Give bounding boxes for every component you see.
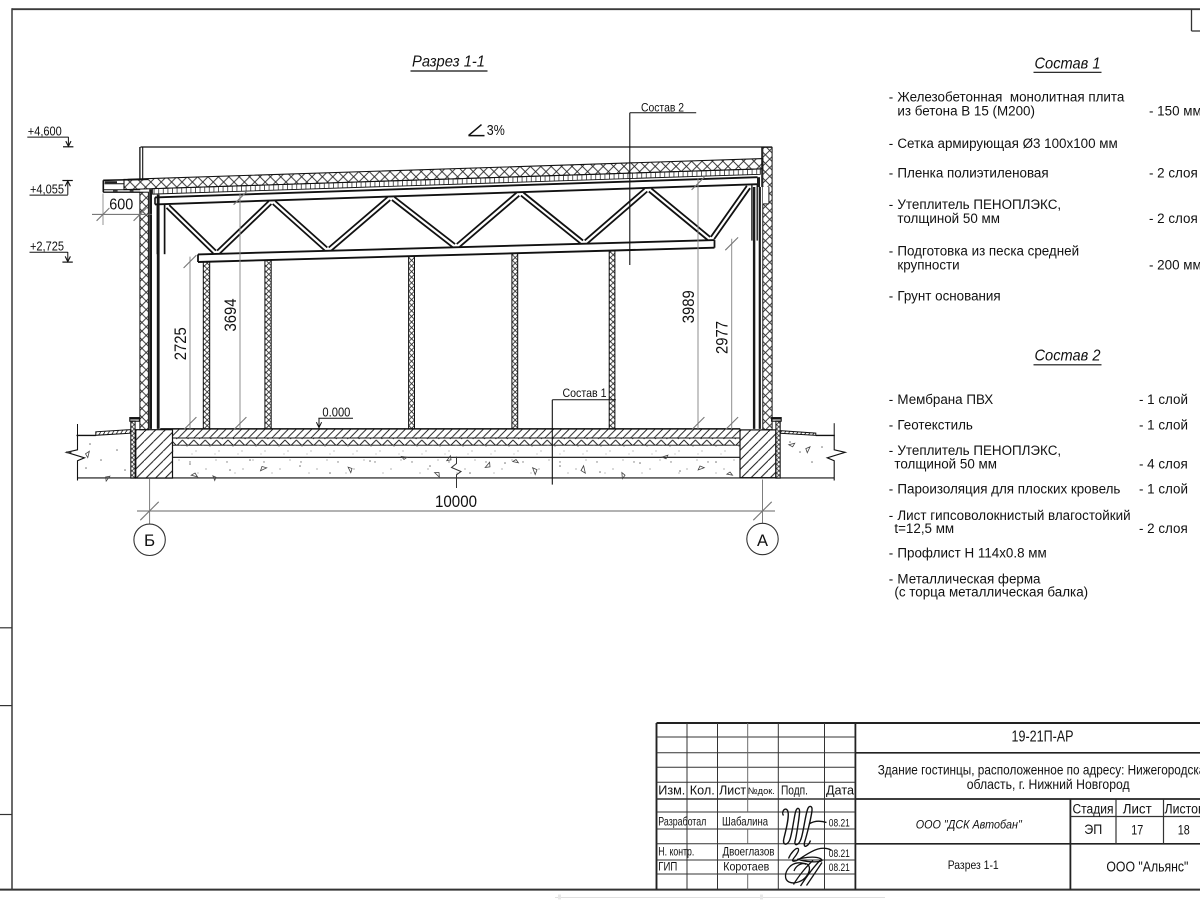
svg-text:Подп.: Подп. <box>781 783 808 798</box>
svg-text:- 1 слой: - 1 слой <box>1139 392 1188 407</box>
svg-text:Грунт основания: Грунт основания <box>897 289 1000 304</box>
svg-text:Б: Б <box>144 531 155 550</box>
svg-text:ООО "Альянс": ООО "Альянс" <box>1106 859 1188 876</box>
svg-text:08.21: 08.21 <box>829 848 850 860</box>
svg-text:Пароизоляция для плоских крове: Пароизоляция для плоских кровель <box>897 482 1120 497</box>
svg-text:ООО "ДСК Автобан": ООО "ДСК Автобан" <box>916 817 1023 831</box>
svg-text:Состав 1: Состав 1 <box>1035 55 1101 72</box>
svg-text:(с торца металлическая балка): (с торца металлическая балка) <box>894 585 1088 600</box>
svg-text:Кол.: Кол. <box>690 783 715 798</box>
svg-text:+4,600: +4,600 <box>28 123 62 138</box>
svg-text:600: 600 <box>109 196 133 213</box>
svg-text:Изм.: Изм. <box>658 783 685 798</box>
svg-text:- 150 мм: - 150 мм <box>1149 104 1200 119</box>
svg-text:-: - <box>889 392 893 407</box>
svg-text:+2,725: +2,725 <box>30 238 64 253</box>
svg-text:-: - <box>889 417 893 432</box>
svg-text:Состав 1: Состав 1 <box>563 386 607 400</box>
svg-text:- 1 слой: - 1 слой <box>1139 417 1188 432</box>
svg-text:Железобетонная монолитная пли: Железобетонная монолитная плита <box>897 90 1124 105</box>
svg-text:Здание гостинцы, расположенное: Здание гостинцы, расположенное по адресу… <box>878 762 1200 777</box>
svg-text:17: 17 <box>1131 822 1143 838</box>
svg-text:область, г. Нижний Новгород: область, г. Нижний Новгород <box>967 777 1130 792</box>
svg-text:толщиной 50 мм: толщиной 50 мм <box>894 456 997 471</box>
svg-text:Шабалина: Шабалина <box>722 814 768 828</box>
svg-text:Мембрана ПВХ: Мембрана ПВХ <box>897 392 993 407</box>
svg-text:Пленка полиэтиленовая: Пленка полиэтиленовая <box>897 166 1048 181</box>
svg-text:из бетона В 15 (М200): из бетона В 15 (М200) <box>897 104 1035 119</box>
svg-text:+4,055: +4,055 <box>30 181 64 196</box>
svg-text:10000: 10000 <box>435 492 477 511</box>
svg-text:Стадия: Стадия <box>1073 802 1114 817</box>
svg-text:08.21: 08.21 <box>829 817 850 829</box>
svg-text:-: - <box>889 90 893 105</box>
svg-text:3%: 3% <box>487 123 505 139</box>
svg-text:2725: 2725 <box>172 327 190 360</box>
svg-text:Разработал: Разработал <box>658 814 706 828</box>
svg-text:Подготовка из песка средней: Подготовка из песка средней <box>897 243 1079 258</box>
svg-text:3989: 3989 <box>680 290 698 323</box>
svg-text:Лист: Лист <box>719 783 746 798</box>
svg-text:Разрез 1-1: Разрез 1-1 <box>948 858 999 872</box>
svg-text:-: - <box>889 546 893 561</box>
svg-text:ГИП: ГИП <box>658 859 677 873</box>
svg-text:-: - <box>889 136 893 151</box>
svg-text:t=12,5 мм: t=12,5 мм <box>894 521 954 536</box>
svg-text:Разрез 1-1: Разрез 1-1 <box>412 54 485 71</box>
svg-text:Двоеглазов: Двоеглазов <box>723 845 775 859</box>
svg-text:№док.: №док. <box>748 786 775 797</box>
svg-text:- 2 слоя: - 2 слоя <box>1149 211 1198 226</box>
svg-text:толщиной 50 мм: толщиной 50 мм <box>897 211 1000 226</box>
svg-text:Сетка армирующая Ø3 100х100 мм: Сетка армирующая Ø3 100х100 мм <box>897 136 1117 151</box>
svg-text:ЭП: ЭП <box>1084 821 1102 837</box>
svg-text:-: - <box>889 508 893 523</box>
svg-text:- 200 мм: - 200 мм <box>1149 258 1200 273</box>
svg-text:19-21П-АР: 19-21П-АР <box>1012 729 1074 746</box>
svg-text:-: - <box>889 571 893 586</box>
svg-text:-: - <box>889 197 893 212</box>
svg-text:крупности: крупности <box>897 258 959 273</box>
svg-text:-: - <box>889 166 893 181</box>
svg-text:Утеплитель ПЕНОПЛЭКС,: Утеплитель ПЕНОПЛЭКС, <box>897 197 1061 212</box>
svg-text:- 2 слоя: - 2 слоя <box>1149 166 1198 181</box>
svg-text:08.21: 08.21 <box>829 862 850 874</box>
svg-text:Листов: Листов <box>1165 802 1200 817</box>
svg-text:Н. контр.: Н. контр. <box>658 845 694 859</box>
svg-text:3694: 3694 <box>222 299 240 332</box>
svg-text:Профлист Н 114х0.8 мм: Профлист Н 114х0.8 мм <box>897 546 1046 561</box>
svg-text:-: - <box>889 482 893 497</box>
svg-text:-: - <box>889 243 893 258</box>
svg-text:Дата: Дата <box>826 783 855 798</box>
svg-text:- 4 слоя: - 4 слоя <box>1139 456 1188 471</box>
svg-text:Коротаев: Коротаев <box>723 859 769 873</box>
svg-text:А: А <box>757 532 768 550</box>
svg-text:- 2 слоя: - 2 слоя <box>1139 521 1188 536</box>
svg-text:18: 18 <box>1178 821 1190 837</box>
svg-text:- 1 слой: - 1 слой <box>1139 482 1188 497</box>
svg-text:Лист: Лист <box>1123 802 1152 817</box>
svg-text:Состав 2: Состав 2 <box>1035 348 1101 365</box>
svg-text:0.000: 0.000 <box>322 404 350 419</box>
svg-text:2977: 2977 <box>714 321 732 354</box>
svg-text:-: - <box>889 289 893 304</box>
svg-text:-: - <box>889 443 893 458</box>
svg-text:Состав 2: Состав 2 <box>641 100 684 114</box>
svg-text:Геотекстиль: Геотекстиль <box>897 417 973 432</box>
